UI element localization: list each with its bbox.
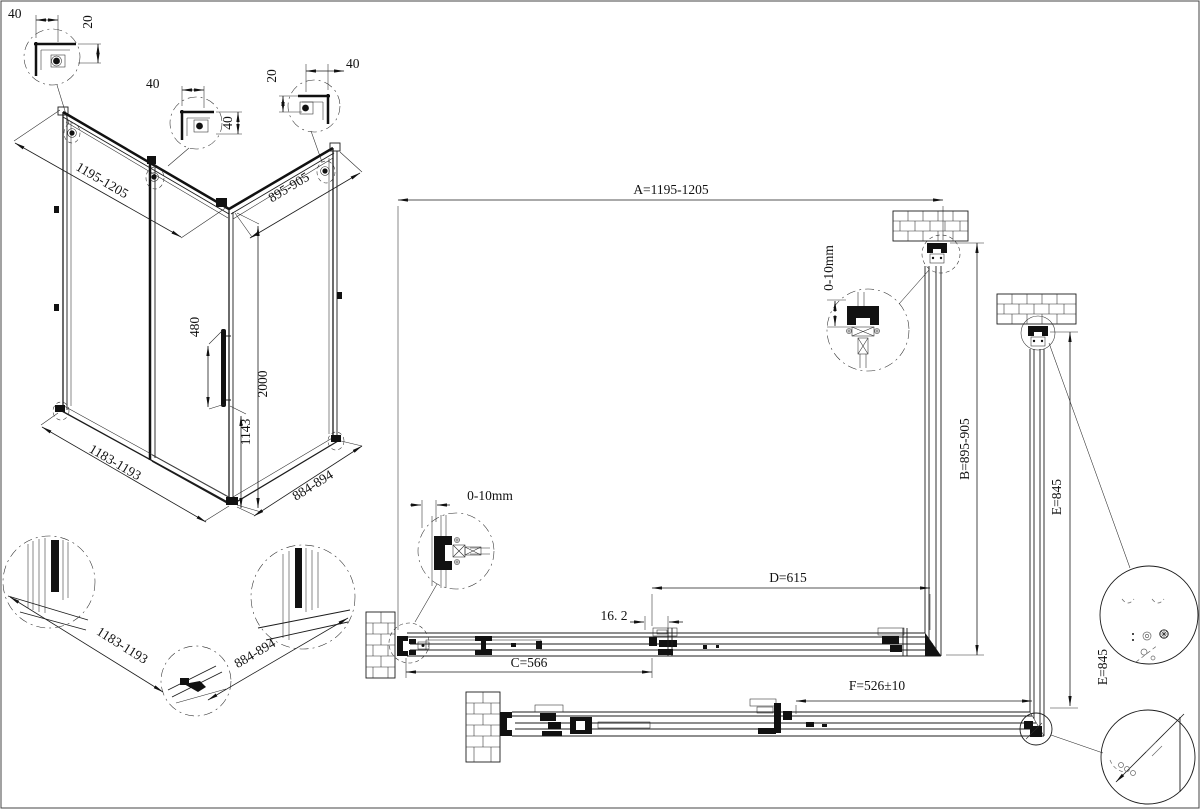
detail1-dim-20: 20: [80, 15, 95, 29]
iso-dim-bottom-depth: 884-894: [237, 441, 362, 516]
detail3-dim-20: 20: [264, 69, 279, 83]
technical-drawing-sheet: 40 20 40 40 20 40: [0, 0, 1200, 809]
panel-b-section: [925, 266, 941, 656]
bottom-profile-details: 1183-1193 884-894: [3, 536, 355, 716]
dim-gap: 16. 2: [601, 608, 684, 630]
plan-lower-track: [500, 699, 1044, 736]
dim-c-label: C=566: [511, 655, 548, 670]
dim-d-label: D=615: [769, 570, 807, 585]
corner-detail-2: 40 40: [146, 76, 242, 166]
iso-dim-handle-len: 480: [187, 317, 225, 409]
corner-detail-1: 40 20: [8, 6, 101, 124]
dim-e-label: E=845: [1049, 479, 1064, 515]
dim-f: F=526±10: [796, 678, 1032, 714]
dim-e: E=845 E=845: [1049, 332, 1110, 708]
detail-circle-wall-adjust-top: 0-10mm: [821, 245, 909, 371]
sheet-border: [1, 1, 1199, 808]
isometric-view: 1195-1205 895-905 2000 1143 480 1183-119…: [14, 107, 362, 522]
iso-height-label: 2000: [255, 370, 270, 397]
iso-handle-len-label: 480: [187, 317, 202, 338]
iso-top-width-label: 1195-1205: [73, 159, 131, 201]
detail2-dim-40-top: 40: [146, 76, 160, 91]
iso-dim-bottom-width: 1183-1193: [41, 413, 229, 522]
iso-bottom-width-label: 1183-1193: [87, 441, 144, 483]
corner-junction-circle: [1020, 713, 1103, 753]
wall-profile-top-right: [899, 235, 960, 304]
iso-dim-height: 2000: [237, 213, 270, 512]
adj-left-label: 0-10mm: [467, 488, 513, 503]
iso-handle-pos-label: 1143: [238, 419, 253, 446]
wall-brick-front-lower: [466, 692, 500, 762]
iso-dim-top-width: 1195-1205: [14, 110, 227, 238]
detail3-dim-40: 40: [346, 56, 360, 71]
dim-c: C=566: [406, 655, 652, 678]
detail-circle-corner-parts: [1100, 566, 1198, 664]
dim-d: D=615: [652, 570, 930, 630]
detail2-dim-40-side: 40: [220, 116, 235, 130]
wall-profile-side: [1021, 316, 1130, 568]
detail-circle-wall-adjust-left: 0-10mm: [410, 488, 513, 589]
dim-e2-label: E=845: [1095, 649, 1110, 685]
dim-gap-label: 16. 2: [601, 608, 628, 623]
plan-view: A=1195-1205 B=895-905: [366, 182, 1198, 804]
dim-b-label: B=895-905: [957, 418, 972, 480]
detail-circle-corner-assembly: [1101, 710, 1195, 804]
iso-bottom-depth-label: 884-894: [290, 467, 336, 504]
panel-e-section: [1030, 349, 1044, 736]
detail1-dim-40: 40: [8, 6, 22, 21]
base-depth-label: 884-894: [232, 635, 279, 671]
wall-brick-side: [997, 294, 1076, 324]
adj-top-label: 0-10mm: [821, 245, 836, 291]
plan-upper-track: [389, 584, 941, 663]
base-dim-width: 1183-1193: [10, 597, 163, 692]
dim-a-label: A=1195-1205: [633, 182, 709, 197]
dim-a: A=1195-1205: [398, 182, 943, 630]
wall-brick-front-left: [366, 612, 395, 678]
dim-f-label: F=526±10: [849, 678, 906, 693]
wall-brick-top-right: [893, 211, 968, 241]
door-handle: [221, 329, 226, 407]
dim-b: B=895-905: [946, 243, 984, 655]
shower-enclosure-drawing: 40 20 40 40 20 40: [0, 0, 1200, 809]
corner-detail-3: 20 40: [264, 56, 360, 162]
base-width-label: 1183-1193: [94, 624, 151, 667]
base-dim-depth: 884-894: [208, 618, 348, 700]
